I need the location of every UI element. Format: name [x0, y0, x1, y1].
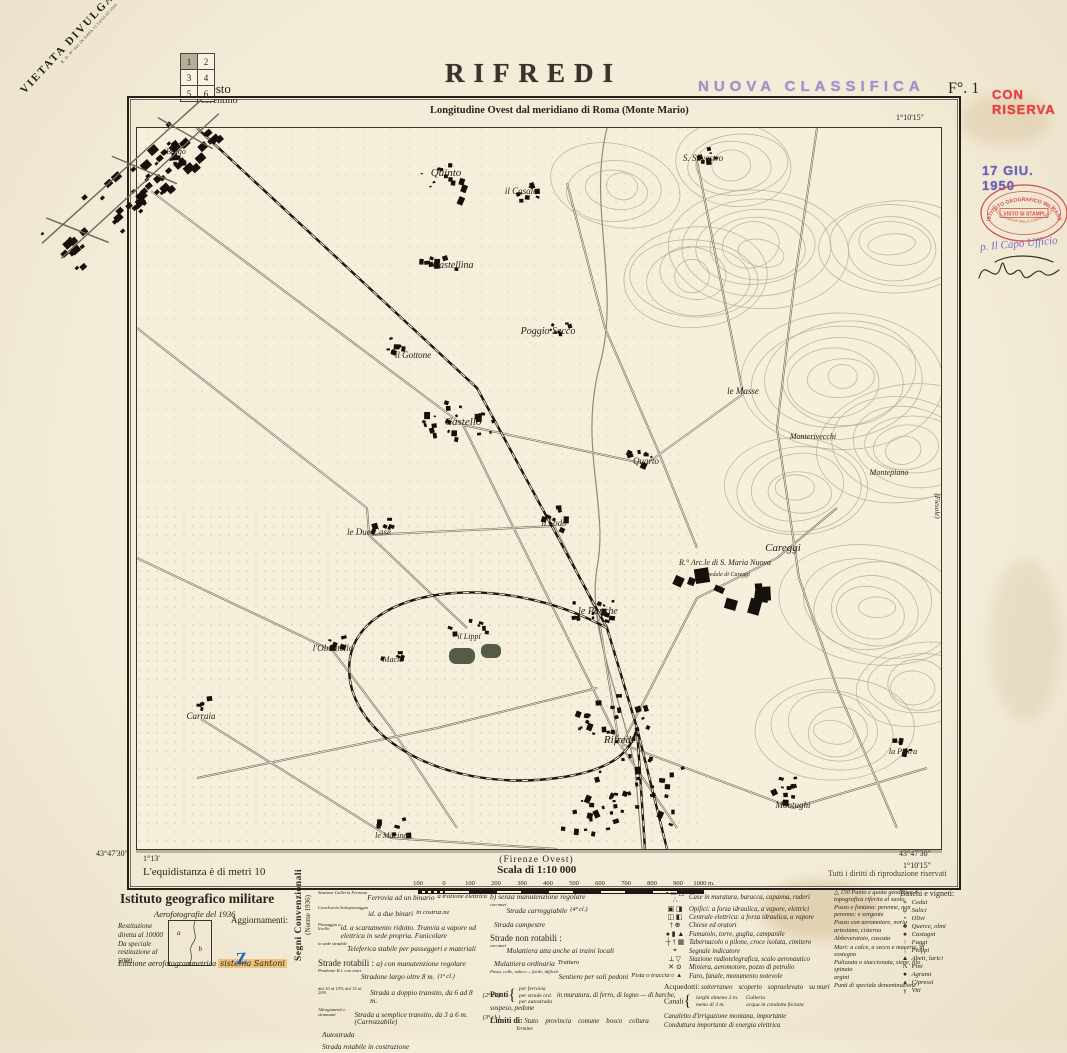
index-cell: 1: [181, 54, 198, 70]
scale-tick: 300: [517, 880, 527, 887]
svg-text:Carraia: Carraia: [186, 711, 216, 721]
woods-glyph: |: [900, 947, 910, 955]
legend-row: ┼ † ▦ Tabernacolo o pilone, croce isolat…: [664, 939, 860, 946]
meridian-subtitle: Longitudine Ovest dal meridiano di Roma …: [430, 105, 689, 116]
oval-stamp-middle-text: VISTO SI STAMPI: [1004, 212, 1046, 218]
woods-item: ▲ Abeti, larici: [900, 955, 986, 963]
legend-glyph: ▣ ◨: [664, 906, 686, 913]
woods-item: ▴ Cipressi: [900, 979, 986, 987]
reserve-stamp: CON RISERVA: [992, 87, 1067, 117]
woods-item: ψ Salici: [900, 907, 986, 915]
page-title: RIFREDI: [445, 58, 622, 89]
scale-tick: 100: [465, 880, 475, 887]
woods-item: ♠ Castagni: [900, 931, 986, 939]
legend: Istituto geografico militare Aerofotogra…: [118, 889, 1018, 1035]
paper-stain: [990, 560, 1060, 720]
scale-tick: 400: [543, 880, 553, 887]
scale-tick: 200: [491, 880, 501, 887]
legend-glyph: ⌖: [664, 947, 686, 954]
svg-text:S. Silvestro: S. Silvestro: [683, 153, 724, 163]
woods-glyph: γ: [900, 987, 910, 995]
legend-row: Strada rotabile in costruzione: [318, 1042, 500, 1051]
map-sheet-scan: { "header": { "title": "RIFREDI", "class…: [0, 0, 1067, 1039]
svg-text:Montepiano: Montepiano: [869, 468, 909, 477]
woods-item: | Pioppi: [900, 947, 986, 955]
legend-source-item: Restituzione diretta al 10000: [118, 922, 168, 940]
scale-tick: 100: [413, 880, 423, 887]
woods-glyph: ▴: [900, 979, 910, 987]
legend-row: con muri Strada carreggiabile (4ª cl.): [490, 903, 686, 918]
legend-glyph: † ⊕: [664, 922, 686, 929]
woods-item: ∗ Cedui: [900, 899, 986, 907]
woods-glyph: ↑: [900, 939, 910, 947]
woods-glyph: ▲: [900, 955, 910, 963]
legend-row: Mulattiera ordinaria Tratturo: [490, 959, 686, 968]
legend-column-symbols: ▪ ▭ △ ∴ Case in muratura, baracca, capan…: [664, 889, 860, 1029]
legend-glyph: ┼ † ▦: [664, 939, 686, 946]
legend-conventional-title: Segni Convenzionali (Norme 1936): [294, 869, 312, 961]
svg-text:(Fiesole): (Fiesole): [933, 493, 941, 519]
scale-tick: 500: [569, 880, 579, 887]
svg-text:Castellina: Castellina: [432, 260, 473, 271]
legend-row: Pendenze K.l. con muri Stradone largo ol…: [318, 969, 500, 984]
woods-glyph: ♠: [900, 931, 910, 939]
woods-glyph: ●: [900, 971, 910, 979]
svg-text:Poggio Secco: Poggio Secco: [520, 326, 576, 337]
svg-text:il Lippi: il Lippi: [457, 632, 480, 641]
svg-text:Montughi: Montughi: [775, 800, 811, 810]
edition-note-text: Edizione aerofotogrammetrica: [118, 959, 216, 968]
handwritten-z-mark: Z: [235, 949, 248, 970]
legend-glyph: ⟂ ▽: [664, 956, 686, 963]
svg-text:le Masse: le Masse: [727, 386, 759, 396]
legend-row: ☼ ▴ Faro, fanale, monumento notevole: [664, 972, 860, 979]
diagram-letter-b: b: [199, 945, 203, 953]
woods-glyph: ∗: [900, 899, 910, 907]
svg-text:la Pietra: la Pietra: [889, 747, 917, 756]
svg-text:le Due Case: le Due Case: [347, 527, 391, 537]
svg-text:Quarto: Quarto: [633, 456, 660, 466]
scale-tick: 900: [673, 880, 683, 887]
limits-block: Limiti di: Statoprovinciacomuneboscocolt…: [490, 1016, 686, 1032]
legend-edition-note: Edizione aerofotogrammetrica sistema San…: [118, 959, 287, 968]
roads-title: Strade rotabili : a) con manutenzione re…: [318, 958, 500, 968]
woods-glyph: Λ: [900, 963, 910, 971]
legend-row: ▣ ◨ Opifici: a forza idraulica, a vapore…: [664, 906, 860, 913]
map-drawing: BorgoQuintoS. Silvestroil CasaleCastelli…: [137, 128, 941, 849]
svg-text:Careggi: Careggi: [765, 542, 801, 554]
svg-text:le Panche: le Panche: [578, 606, 618, 617]
legend-row: Cavalcavia Sottopassaggio id. a due bina…: [318, 906, 500, 921]
legend-row: Passo, colle, valico — facile, difficile…: [490, 970, 686, 984]
svg-text:Castello: Castello: [445, 416, 482, 428]
roads-b-title: b) senza manutenzione regolare: [490, 892, 585, 901]
legend-glyph: ◫ ◧: [664, 914, 686, 921]
canal-extra-1: Canaletto d'irrigazione montana, importa…: [664, 1013, 860, 1020]
legend-row: Allargamenti e stramazzi Strada a sempli…: [318, 1008, 500, 1028]
legend-row: ⟂ ▽ Stazione radiotelegrafica, scalo aer…: [664, 956, 860, 963]
rights-note: Tutti i diritti di riproduzione riservat…: [828, 869, 947, 878]
diagram-letter-a: a: [177, 929, 181, 937]
scale-title: Scala di 1:10 000: [497, 864, 576, 876]
classification-stamp: NUOVA CLASSIFICA: [698, 78, 925, 95]
nonroads-title: Strade non rotabili :: [490, 933, 686, 943]
svg-text:il Sodo: il Sodo: [541, 518, 567, 528]
legend-row: Passaggio a livello id. a scartamento ri…: [318, 923, 500, 941]
woods-glyph: •: [900, 915, 910, 923]
woods-item: ♣ Querce, olmi: [900, 923, 986, 931]
legend-glyph: ✕ ⊙: [664, 964, 686, 971]
legend-column-woods: Boschi e vigneti: ∗ Cedui ψ Salici • Oli…: [900, 889, 986, 995]
legend-row: ⌖ Segnale indicatore: [664, 947, 860, 954]
equidistance-note: L'equidistanza è di metri 10: [143, 866, 265, 878]
coord-top-right-lon: 1°10'15": [896, 113, 924, 122]
legend-row: in sede stradale Teleferica stabile per …: [318, 942, 500, 955]
svg-text:il Casale: il Casale: [505, 186, 537, 196]
legend-row: † ⊕ Chiese ed oratori: [664, 922, 860, 929]
legend-column-railways-roads: Stazione Galleria Fermata Ferrovia ad un…: [318, 889, 500, 1053]
legend-row: ◫ ◧ Centrale elettrica: a forza idraulic…: [664, 914, 860, 921]
legend-row: Stazione Galleria Fermata Ferrovia ad un…: [318, 891, 500, 904]
bridges-block: Ponti{per ferroviaper strade ord.per aut…: [490, 986, 686, 1013]
sesto-town-overflow: [14, 72, 249, 272]
woods-item: ↑ Faggi: [900, 939, 986, 947]
svg-text:il Gottone: il Gottone: [395, 350, 431, 360]
svg-text:Macia: Macia: [382, 655, 403, 664]
svg-text:le Macine: le Macine: [375, 831, 407, 840]
signature-mark: [975, 248, 1065, 293]
legend-row: Strada campestre: [490, 920, 686, 931]
canals-row: Canali{ larghi almeno 3 m.meno di 3 m. G…: [664, 993, 860, 1011]
legend-row: ✕ ⊙ Miniera, aeromotore, pozzo di petrol…: [664, 964, 860, 971]
coord-bottom-left-lat: 43°47'30": [96, 849, 128, 858]
legend-institute: Istituto geografico militare: [120, 891, 274, 907]
woods-item: • Olivi: [900, 915, 986, 923]
woods-title: Boschi e vigneti:: [900, 889, 986, 898]
woods-item: ● Agrumi: [900, 971, 986, 979]
legend-row: ● ▮ ▲ Fumaiolo, torre, guglia, campanile: [664, 931, 860, 938]
legend-row: Autostrada: [318, 1030, 500, 1041]
legend-glyph: ● ▮ ▲: [664, 931, 686, 938]
canal-extra-2: Conduttura importante di energia elettri…: [664, 1022, 860, 1029]
conventional-subtitle-text: (Norme 1936): [304, 869, 312, 961]
coord-bottom-left-lon: 1°13': [143, 854, 160, 863]
aqueducts-row: Acquedotti: sotterraneoscopertosopraelev…: [664, 982, 860, 991]
map-canvas: BorgoQuintoS. Silvestroil CasaleCastelli…: [136, 127, 942, 850]
woods-item: Λ Pini: [900, 963, 986, 971]
scale-tick: 600: [595, 880, 605, 887]
legend-row: ▪ ▭ △ ∴ Case in muratura, baracca, capan…: [664, 890, 860, 905]
legend-aerophoto: Aerofotografie del 1936: [154, 909, 235, 919]
legend-updates-label: Aggiornamenti:: [231, 915, 288, 925]
woods-item: γ Viti: [900, 987, 986, 995]
index-cell: 2: [198, 54, 215, 70]
scale-tick: 1000 m.: [693, 880, 714, 887]
legend-row: dal 10 al 15% dal 15 al 20% Strada a dop…: [318, 987, 500, 1007]
legend-glyph: ▪ ▭ △ ∴: [664, 890, 686, 905]
edition-handwritten-highlight: sistema Santoni: [218, 959, 287, 968]
scale-tick: 700: [621, 880, 631, 887]
svg-text:Rifredi: Rifredi: [603, 734, 634, 746]
svg-text:Quinto: Quinto: [431, 167, 462, 179]
svg-text:l'Olmatello: l'Olmatello: [313, 643, 354, 653]
scale-tick: 0: [442, 880, 445, 887]
scale-tick: 800: [647, 880, 657, 887]
woods-glyph: ♣: [900, 923, 910, 931]
svg-text:Monterivecchi: Monterivecchi: [789, 432, 836, 441]
woods-glyph: ψ: [900, 907, 910, 915]
svg-text:R.° Arc.le di S. Maria Nuova: R.° Arc.le di S. Maria Nuova: [678, 558, 771, 567]
legend-column-tracks-bridges: b) senza manutenzione regolare con muri …: [490, 889, 686, 1032]
legend-glyph: ☼ ▴: [664, 972, 686, 979]
svg-text:Ospedale di Careggi: Ospedale di Careggi: [700, 572, 750, 578]
conventional-title-text: Segni Convenzionali: [294, 869, 304, 961]
legend-row: con muri Mulattiera atta anche ai traini…: [490, 944, 686, 957]
